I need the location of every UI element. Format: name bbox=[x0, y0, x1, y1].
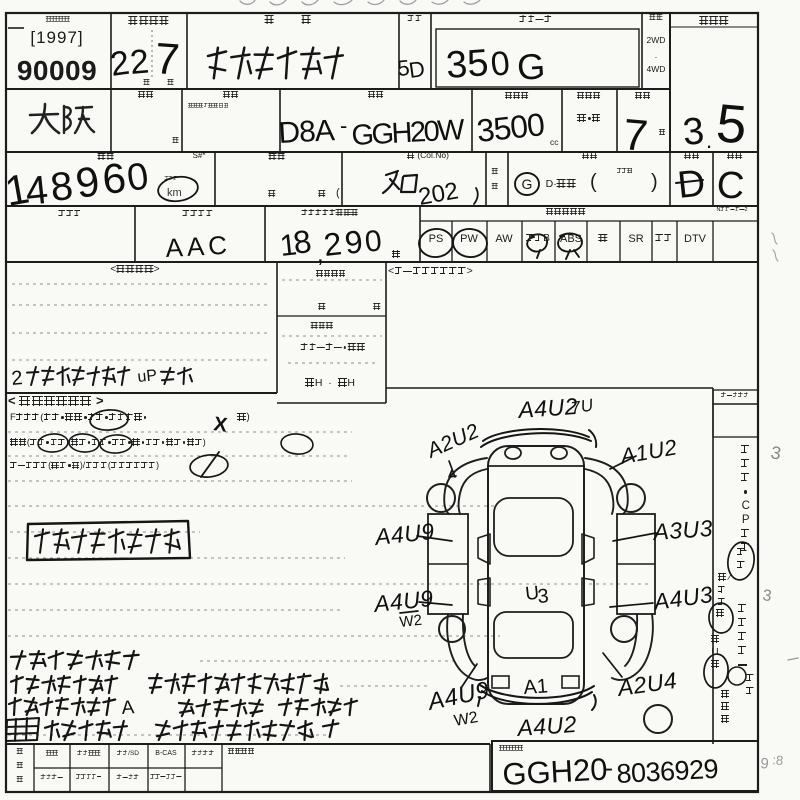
svg-text:D8A: D8A bbox=[278, 114, 336, 150]
svg-text:A: A bbox=[121, 697, 135, 719]
svg-text:9: 9 bbox=[343, 223, 364, 261]
svg-text:A4U9: A4U9 bbox=[424, 677, 492, 717]
svg-text:A4U2: A4U2 bbox=[515, 711, 578, 741]
svg-text:7: 7 bbox=[621, 110, 650, 161]
svg-text:-: - bbox=[340, 113, 347, 138]
svg-text:9: 9 bbox=[760, 755, 770, 773]
svg-text:uP: uP bbox=[137, 367, 158, 386]
svg-text:0: 0 bbox=[489, 44, 512, 84]
svg-text:0: 0 bbox=[124, 155, 151, 200]
svg-text:2: 2 bbox=[322, 225, 343, 263]
svg-text:4: 4 bbox=[23, 168, 50, 214]
svg-text:A4U9: A4U9 bbox=[372, 518, 436, 550]
svg-text:.: . bbox=[706, 128, 712, 153]
svg-text:9: 9 bbox=[73, 157, 103, 207]
svg-text:W2: W2 bbox=[399, 612, 423, 631]
svg-text:5: 5 bbox=[714, 93, 749, 155]
svg-text:A2U2: A2U2 bbox=[422, 419, 483, 463]
svg-text:GGH20W: GGH20W bbox=[351, 114, 466, 152]
svg-text:A1U2: A1U2 bbox=[617, 434, 679, 469]
svg-text:7U: 7U bbox=[569, 395, 595, 418]
svg-text:X: X bbox=[212, 413, 229, 437]
svg-text:D: D bbox=[676, 162, 708, 207]
svg-text:W2: W2 bbox=[453, 709, 480, 730]
svg-text:-: - bbox=[605, 755, 613, 782]
svg-text:8: 8 bbox=[48, 164, 75, 210]
svg-text:A1: A1 bbox=[523, 675, 549, 699]
svg-text:8: 8 bbox=[291, 223, 314, 261]
svg-text:2: 2 bbox=[11, 367, 24, 390]
svg-text:A4U3: A4U3 bbox=[650, 581, 715, 615]
svg-text:3: 3 bbox=[761, 587, 772, 605]
svg-text:3: 3 bbox=[537, 585, 550, 608]
svg-text::8: :8 bbox=[772, 752, 784, 768]
svg-text:8036929: 8036929 bbox=[616, 754, 719, 789]
svg-text:AAC: AAC bbox=[165, 230, 232, 263]
svg-text:D: D bbox=[407, 56, 426, 83]
svg-text:A4U2: A4U2 bbox=[516, 393, 579, 423]
svg-text:C: C bbox=[715, 164, 745, 208]
svg-text:km: km bbox=[167, 187, 182, 199]
svg-text:3: 3 bbox=[681, 110, 706, 154]
svg-text:G: G bbox=[516, 45, 547, 88]
svg-text:35: 35 bbox=[445, 42, 490, 87]
svg-text:0: 0 bbox=[363, 224, 383, 259]
svg-text:A2U4: A2U4 bbox=[614, 667, 679, 701]
svg-text:2: 2 bbox=[128, 42, 150, 82]
svg-text:,: , bbox=[317, 241, 324, 268]
svg-text:3: 3 bbox=[769, 442, 782, 463]
svg-text:A3U3: A3U3 bbox=[651, 515, 714, 545]
svg-text:3500: 3500 bbox=[475, 106, 546, 149]
svg-text:GGH20: GGH20 bbox=[502, 752, 609, 792]
